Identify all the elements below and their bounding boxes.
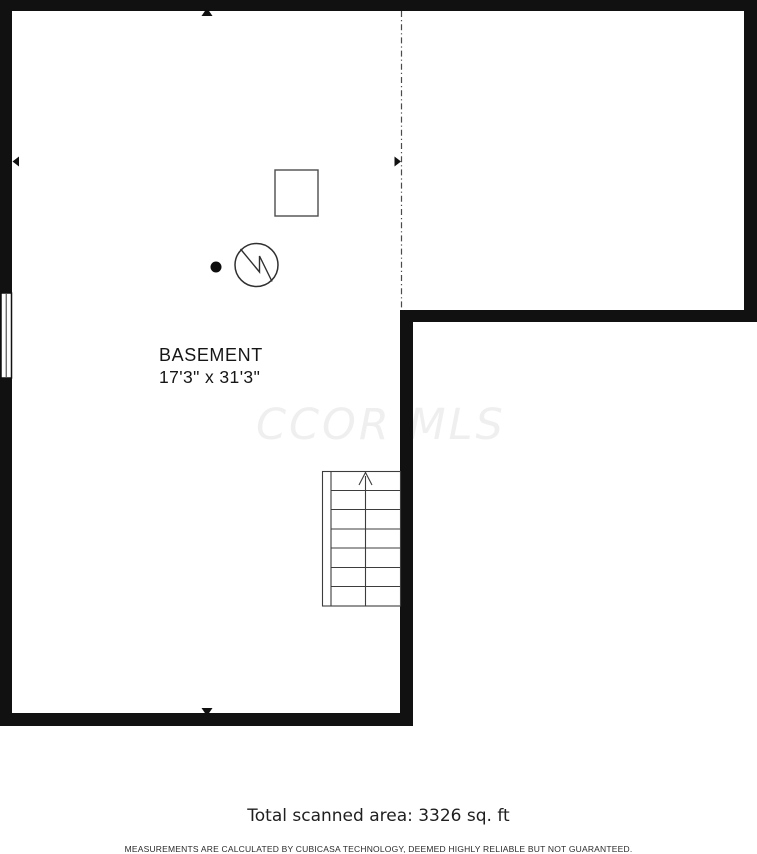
window-symbol (1, 293, 12, 378)
wall-right-section-bottom (400, 310, 757, 322)
water-heater-circle-icon (235, 244, 278, 287)
scan-point-dot (211, 262, 222, 273)
arrow-right-icon (395, 157, 402, 167)
measurement-disclaimer-text: MEASUREMENTS ARE CALCULATED BY CUBICASA … (0, 844, 757, 854)
total-scanned-area-text: Total scanned area: 3326 sq. ft (0, 806, 757, 826)
wall-right (744, 0, 757, 322)
arrow-left-icon (13, 157, 20, 167)
wall-middle-vertical (400, 310, 413, 726)
floorplan-page: CCOR MLS (0, 0, 757, 854)
furnace-square-icon (275, 170, 318, 216)
staircase-up (323, 472, 401, 607)
room-name-label: BASEMENT (159, 345, 263, 366)
wall-top (0, 0, 757, 11)
exterior-walls (0, 0, 757, 726)
floorplan-drawing (0, 0, 757, 790)
room-dimensions-label: 17'3" x 31'3" (159, 367, 260, 388)
